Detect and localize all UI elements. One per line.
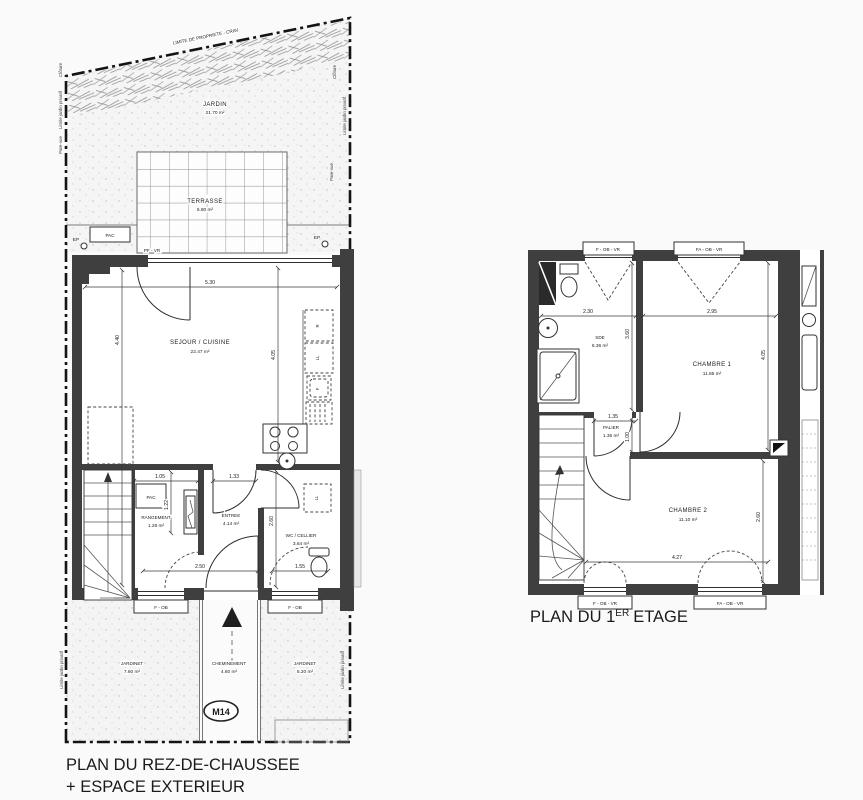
chambre2-label: CHAMBRE 2 <box>669 508 708 514</box>
chambre2-area: 11.10 m² <box>679 517 698 523</box>
entree-label: ENTREE <box>222 513 241 518</box>
ff-dim-4-27: 4.27 <box>672 555 682 561</box>
gf-title-line1: PLAN DU REZ-DE-CHAUSSEE <box>66 756 300 774</box>
sejour-area: 22.47 m² <box>191 349 210 355</box>
ff-dim-1-35: 1.35 <box>608 414 618 420</box>
jardinet-right-area: 5.20 m² <box>297 669 314 675</box>
terrasse: TERRASSE 6.80 m² <box>137 152 287 253</box>
pac-int-label: PAC <box>146 495 156 500</box>
parevue-right: Pare-vue <box>329 163 334 181</box>
dim-1-55: 1.55 <box>295 564 305 570</box>
ff-title-text: PLAN DU 1ERETAGE <box>530 608 688 626</box>
chambre1-area: 11.85 m² <box>703 371 722 377</box>
wc-ll-label: LL <box>314 495 319 500</box>
ff-dim-2-60: 2.60 <box>756 512 762 522</box>
dim-2-50: 2.50 <box>195 564 205 570</box>
ff-window-br-label: FA - OB - VR <box>717 601 744 606</box>
dim-4-40: 4.40 <box>115 335 121 345</box>
palier-area: 1.35 m² <box>603 433 620 439</box>
ff-stairs <box>539 415 584 580</box>
appliance-oven-label: F <box>315 387 320 390</box>
cheminement-area: 4.60 m² <box>221 669 238 675</box>
ff-title-sup: ER <box>615 608 629 619</box>
rangement-area: 1.28 m² <box>148 523 165 529</box>
window-bl-label: F - OB <box>154 605 168 610</box>
jardinet-left-label: JARDINET <box>121 661 144 666</box>
lot-marker-label: M14 <box>212 707 230 717</box>
dim-1-05: 1.05 <box>155 474 165 480</box>
ff-window-tl-label: F - OB - VR <box>596 247 621 252</box>
chambre1-label: CHAMBRE 1 <box>693 362 732 368</box>
dim-4-05: 4.05 <box>271 350 277 360</box>
cloture-left: Clôture <box>58 62 63 77</box>
jardin-label: JARDIN <box>203 102 227 108</box>
ff-window-bl-label: F - OB - VR <box>593 601 618 606</box>
dim-2-60: 2.60 <box>269 516 275 526</box>
terrasse-area: 6.80 m² <box>197 207 214 213</box>
wc-area: 3.64 m² <box>293 541 310 547</box>
wc-label: WC / CELLIER <box>286 533 317 538</box>
limite-right: Limite jardin privatif <box>342 96 347 135</box>
ff-dim-1-00: 1.00 <box>625 432 631 442</box>
window-br-label: F - OB <box>288 605 302 610</box>
jardinet-left-area: 7.60 m² <box>124 669 141 675</box>
gf-title: PLAN DU REZ-DE-CHAUSSEE + ESPACE EXTERIE… <box>66 756 300 796</box>
dim-1-22: 1.22 <box>164 500 170 510</box>
limite-left: Limite jardin privatif <box>58 90 63 129</box>
ff-dim-4-05: 4.05 <box>761 350 767 360</box>
ff-title: PLAN DU 1ERETAGE <box>530 608 688 626</box>
cloture-right: Clôture <box>332 64 337 79</box>
ff-dim-3-60: 3.60 <box>625 329 631 339</box>
ff-dim-2-30: 2.30 <box>583 309 593 315</box>
window-top-label: PF - VR <box>144 248 161 253</box>
sde-area: 6.36 m² <box>592 343 609 349</box>
gf-title-line2: + ESPACE EXTERIEUR <box>66 778 245 796</box>
ff-window-tr-label: FA - OB - VR <box>696 247 723 252</box>
sejour-label: SEJOUR / CUISINE <box>170 340 230 346</box>
ff-title-pre: PLAN DU 1 <box>530 608 615 626</box>
entree-area: 4.14 m² <box>223 521 240 527</box>
dim-1-33: 1.33 <box>229 474 239 480</box>
limite-bottom-right: Limite jardin privatif <box>340 650 345 689</box>
appliance-fridge-label: R <box>315 324 320 327</box>
floor-plan-canvas: LIMITE DE PROPRIETE - CRAV TERRASSE 6.80… <box>0 0 863 800</box>
jardinet-right-label: JARDINET <box>294 661 317 666</box>
terrasse-label: TERRASSE <box>187 199 223 205</box>
parevue-left: Pare-vue <box>58 136 63 154</box>
pac-ext-label: PAC <box>105 233 115 238</box>
jardin-area-label: 21.70 m² <box>206 110 225 116</box>
ff-dim-2-95: 2.95 <box>707 309 717 315</box>
ep-right-label: EP <box>314 235 320 240</box>
rangement-label: RANGEMENT <box>141 515 171 520</box>
gf-stairs <box>84 470 132 600</box>
limite-bottom-left: Limite jardin privatif <box>59 650 64 689</box>
ff-title-post: ETAGE <box>633 608 688 626</box>
ground-floor-plan: LIMITE DE PROPRIETE - CRAV TERRASSE 6.80… <box>58 18 361 796</box>
dim-5-30: 5.30 <box>205 280 215 286</box>
cheminement-label: CHEMINEMENT <box>212 661 246 666</box>
appliance-ll-label: LL <box>315 355 320 360</box>
sde-label: SDE <box>595 335 604 340</box>
ep-left-label: EP <box>73 237 79 242</box>
palier-label: PALIER <box>603 425 620 430</box>
first-floor-plan: F - OB - VR FA - OB - VR F - OB - VR FA … <box>528 242 824 626</box>
